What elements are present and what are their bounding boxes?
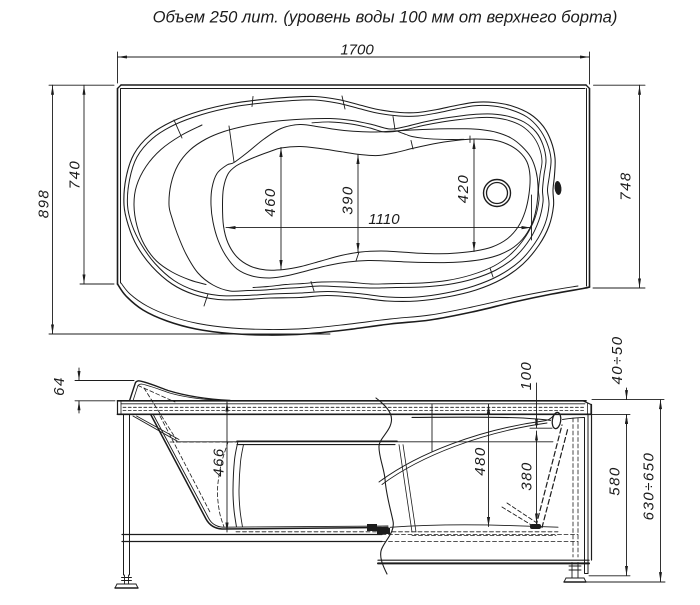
svg-text:466: 466 (211, 447, 228, 477)
svg-text:1110: 1110 (368, 211, 400, 228)
svg-text:740: 740 (67, 160, 84, 190)
svg-text:420: 420 (455, 174, 472, 204)
svg-text:1700: 1700 (340, 42, 374, 59)
svg-text:40÷50: 40÷50 (609, 335, 626, 384)
svg-text:480: 480 (472, 446, 489, 476)
svg-text:898: 898 (36, 189, 53, 219)
svg-text:64: 64 (51, 376, 68, 396)
svg-text:748: 748 (618, 171, 635, 201)
svg-text:380: 380 (519, 461, 536, 491)
svg-text:100: 100 (518, 361, 535, 391)
svg-text:460: 460 (262, 187, 279, 217)
svg-text:Объем 250 лит. (уровень воды 1: Объем 250 лит. (уровень воды 100 мм от в… (153, 8, 618, 27)
svg-text:580: 580 (607, 466, 624, 496)
svg-text:390: 390 (340, 185, 357, 215)
svg-text:630÷650: 630÷650 (641, 452, 658, 521)
